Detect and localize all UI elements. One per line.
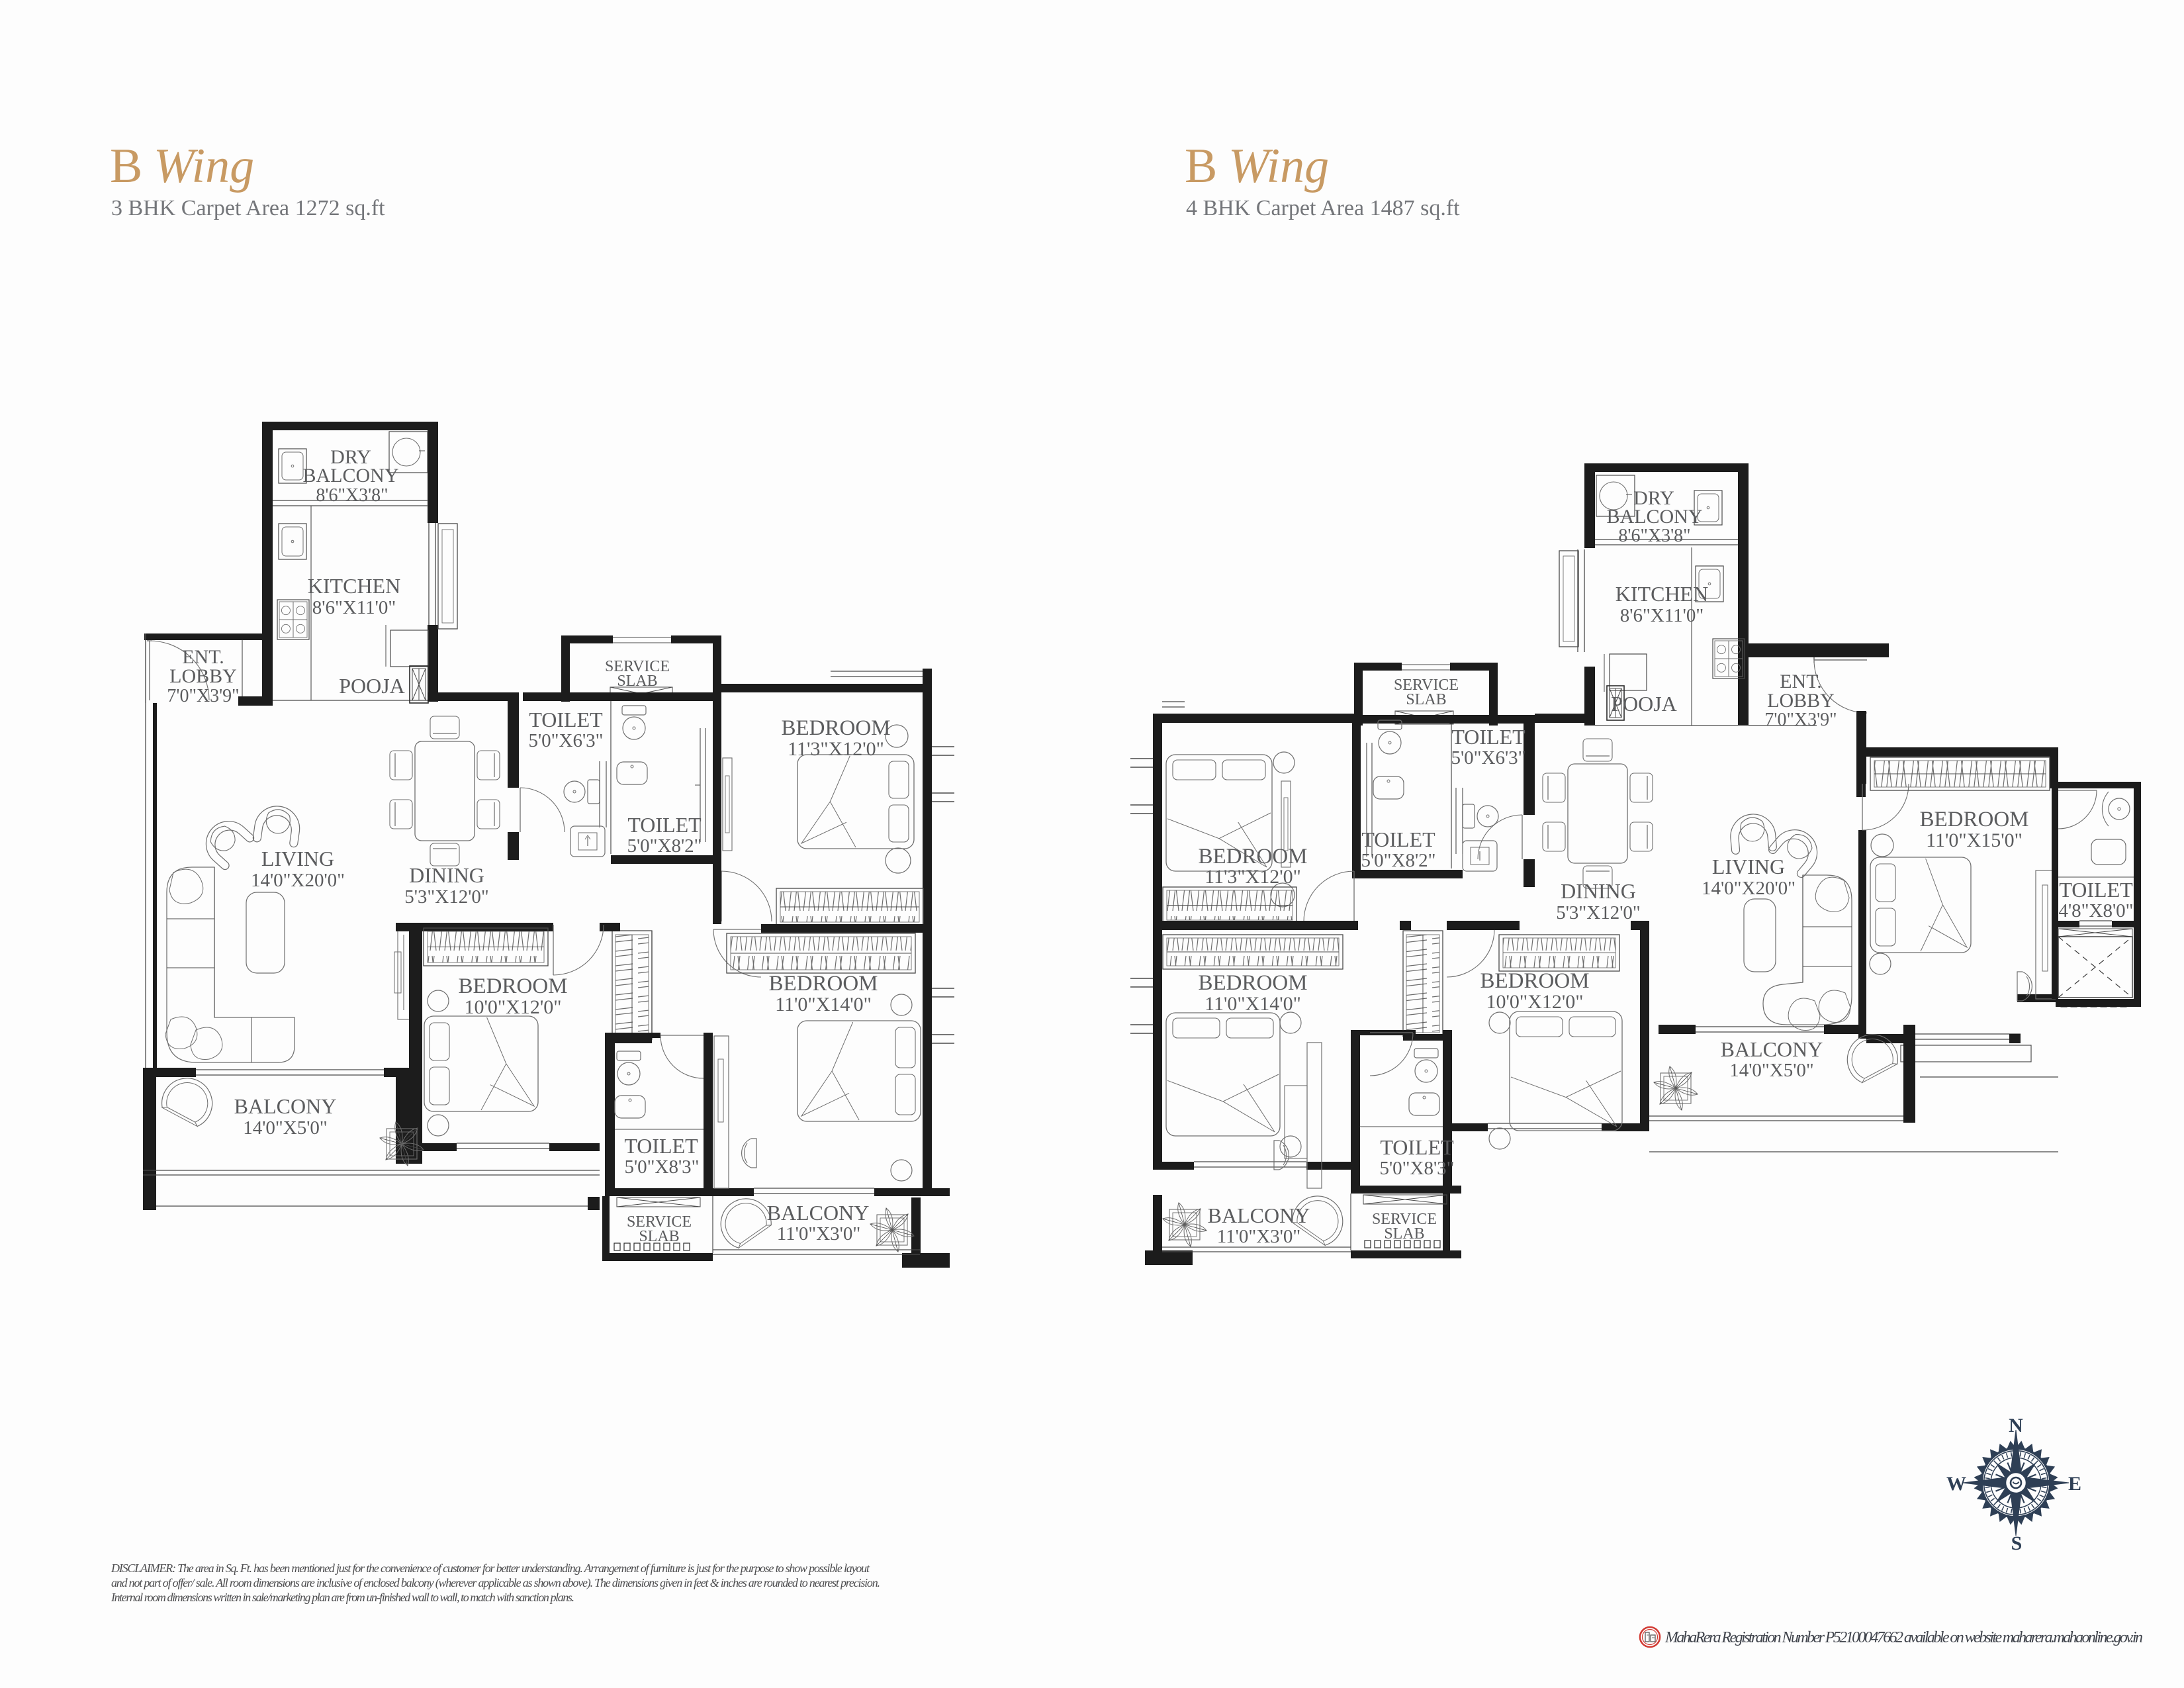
svg-text:11'3"X12'0": 11'3"X12'0" (1205, 866, 1301, 888)
svg-text:S: S (2011, 1532, 2023, 1554)
svg-text:TOILET: TOILET (529, 708, 603, 731)
svg-text:11'3"X12'0": 11'3"X12'0" (788, 738, 884, 760)
svg-text:7'0"X3'9": 7'0"X3'9" (1764, 710, 1837, 730)
svg-text:5'0"X8'3": 5'0"X8'3" (1379, 1158, 1454, 1179)
svg-text:Internal room dimensions writt: Internal room dimensions written in sale… (111, 1591, 574, 1604)
svg-text:TOILET: TOILET (1361, 827, 1435, 851)
svg-text:14'0"X20'0": 14'0"X20'0" (1702, 878, 1796, 899)
svg-text:4'8"X8'0": 4'8"X8'0" (2058, 900, 2133, 921)
svg-text:SLAB: SLAB (1384, 1225, 1424, 1243)
svg-text:KITCHEN: KITCHEN (308, 574, 400, 598)
svg-text:11'0"X14'0": 11'0"X14'0" (775, 994, 872, 1015)
svg-text:14'0"X5'0": 14'0"X5'0" (243, 1117, 328, 1139)
svg-text:BALCONY: BALCONY (1208, 1203, 1310, 1227)
svg-text:5'0"X8'2": 5'0"X8'2" (627, 835, 702, 857)
svg-text:POOJA: POOJA (339, 674, 405, 698)
svg-text:TOILET: TOILET (1451, 725, 1525, 749)
svg-text:and not part of offer/ sale. A: and not part of offer/ sale. All room di… (111, 1576, 880, 1590)
svg-text:DINING: DINING (409, 863, 484, 887)
svg-text:W: W (1946, 1473, 1966, 1495)
svg-text:BEDROOM: BEDROOM (1198, 971, 1307, 995)
svg-text:BALCONY: BALCONY (767, 1201, 870, 1225)
svg-text:5'0"X8'3": 5'0"X8'3" (624, 1156, 699, 1178)
svg-text:DINING: DINING (1561, 879, 1636, 903)
svg-text:BEDROOM: BEDROOM (768, 972, 878, 996)
svg-text:TOILET: TOILET (627, 813, 702, 837)
svg-text:5'0"X8'2": 5'0"X8'2" (1361, 850, 1435, 871)
svg-text:KITCHEN: KITCHEN (1615, 582, 1708, 606)
svg-text:N: N (2009, 1415, 2023, 1436)
svg-text:POOJA: POOJA (1611, 692, 1677, 716)
svg-text:5'3"X12'0": 5'3"X12'0" (1556, 902, 1641, 923)
svg-text:BEDROOM: BEDROOM (1198, 845, 1307, 868)
svg-text:8'6"X3'8": 8'6"X3'8" (1618, 526, 1690, 546)
svg-text:11'0"X3'0": 11'0"X3'0" (777, 1223, 861, 1244)
svg-text:LIVING: LIVING (261, 847, 334, 870)
svg-text:LOBBY: LOBBY (169, 665, 237, 687)
svg-text:BEDROOM: BEDROOM (781, 716, 890, 740)
svg-text:11'0"X3'0": 11'0"X3'0" (1217, 1226, 1301, 1247)
svg-text:5'0"X6'3": 5'0"X6'3" (1451, 747, 1525, 769)
svg-text:LIVING: LIVING (1712, 855, 1785, 878)
svg-text:14'0"X20'0": 14'0"X20'0" (251, 870, 345, 891)
svg-text:14'0"X5'0": 14'0"X5'0" (1729, 1060, 1814, 1081)
svg-text:7'0"X3'9": 7'0"X3'9" (167, 686, 239, 706)
svg-text:8'6"X3'8": 8'6"X3'8" (316, 485, 388, 506)
svg-text:4 BHK Carpet Area 1487 sq.ft: 4 BHK Carpet Area 1487 sq.ft (1186, 196, 1460, 220)
svg-text:5'3"X12'0": 5'3"X12'0" (404, 886, 489, 908)
svg-text:BALCONY: BALCONY (234, 1094, 337, 1118)
svg-text:TOILET: TOILET (624, 1134, 698, 1158)
svg-text:Wing: Wing (1228, 139, 1329, 193)
svg-text:E: E (2068, 1473, 2081, 1495)
svg-text:11'0"X14'0": 11'0"X14'0" (1205, 993, 1301, 1015)
svg-text:SLAB: SLAB (617, 673, 657, 690)
svg-text:BALCONY: BALCONY (302, 465, 398, 487)
svg-text:8'6"X11'0": 8'6"X11'0" (1620, 605, 1704, 626)
svg-text:LOBBY: LOBBY (1767, 690, 1835, 712)
svg-text:10'0"X12'0": 10'0"X12'0" (465, 996, 562, 1018)
svg-text:BEDROOM: BEDROOM (458, 974, 567, 998)
svg-text:B: B (1185, 139, 1217, 193)
svg-text:BEDROOM: BEDROOM (1480, 969, 1589, 993)
svg-text:SLAB: SLAB (639, 1228, 679, 1245)
svg-text:3 BHK Carpet Area 1272 sq.ft: 3 BHK Carpet Area 1272 sq.ft (111, 196, 385, 220)
svg-text:MahaRera Registration Number P: MahaRera Registration Number P5210004766… (1664, 1629, 2143, 1646)
svg-text:BALCONY: BALCONY (1721, 1037, 1823, 1061)
svg-text:Wing: Wing (154, 139, 254, 193)
svg-text:TOILET: TOILET (1380, 1135, 1454, 1159)
svg-text:11'0"X15'0": 11'0"X15'0" (1926, 829, 2023, 851)
svg-text:BEDROOM: BEDROOM (1919, 808, 2028, 831)
svg-text:8'6"X11'0": 8'6"X11'0" (312, 597, 396, 618)
svg-text:BALCONY: BALCONY (1606, 506, 1702, 528)
svg-text:5'0"X6'3": 5'0"X6'3" (528, 730, 603, 751)
svg-text:B: B (110, 139, 142, 193)
svg-text:SLAB: SLAB (1406, 691, 1446, 708)
svg-text:DISCLAIMER: The area in Sq. Ft: DISCLAIMER: The area in Sq. Ft. has been… (111, 1562, 870, 1575)
svg-text:TOILET: TOILET (2059, 878, 2133, 902)
svg-text:10'0"X12'0": 10'0"X12'0" (1486, 991, 1584, 1013)
